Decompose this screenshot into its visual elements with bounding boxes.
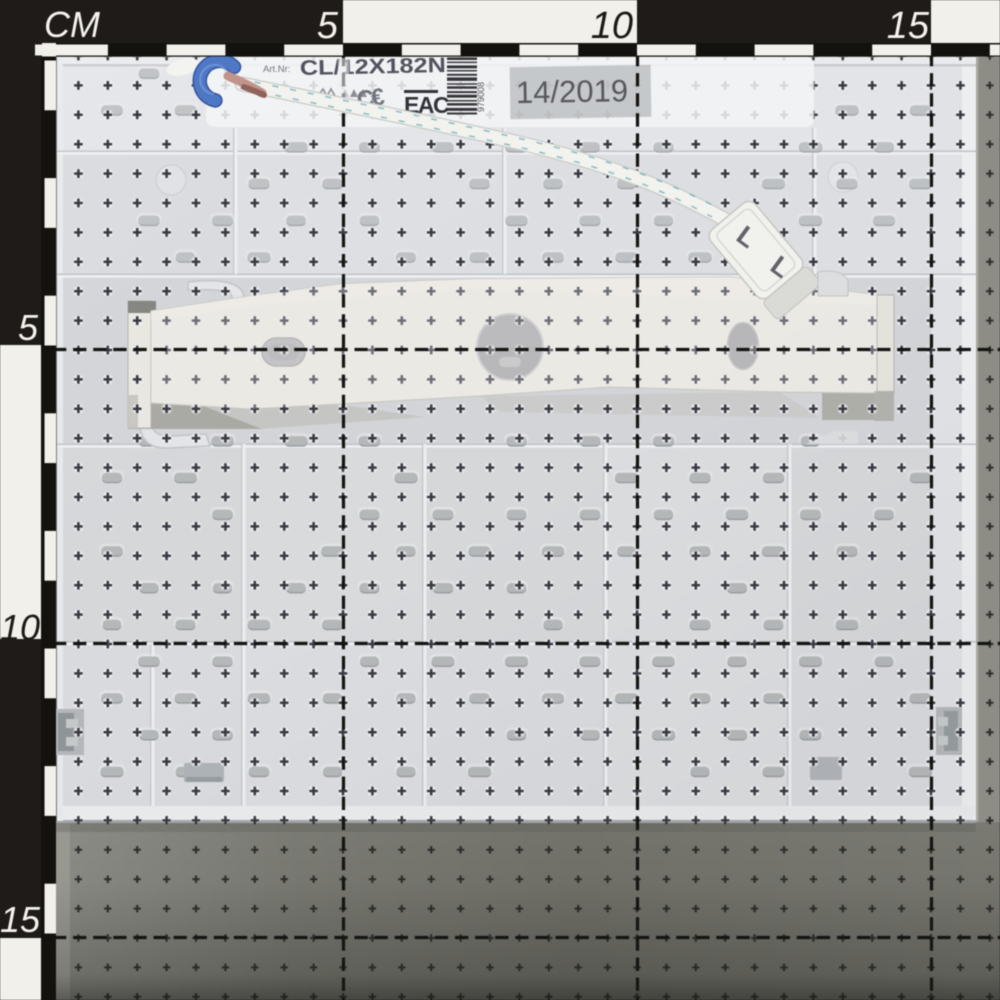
svg-text:5: 5 [18, 307, 39, 348]
svg-text:CM: CM [44, 4, 100, 45]
svg-text:10: 10 [591, 5, 633, 47]
svg-text:15: 15 [887, 5, 930, 47]
svg-text:CL/12X182N: CL/12X182N [300, 54, 446, 80]
svg-text:979008: 979008 [476, 82, 486, 112]
svg-text:14/2019: 14/2019 [516, 73, 629, 110]
svg-text:10: 10 [0, 607, 40, 648]
svg-text:Art.Nr:: Art.Nr: [263, 64, 290, 75]
svg-text:5: 5 [317, 5, 339, 47]
svg-text:15: 15 [0, 899, 41, 940]
